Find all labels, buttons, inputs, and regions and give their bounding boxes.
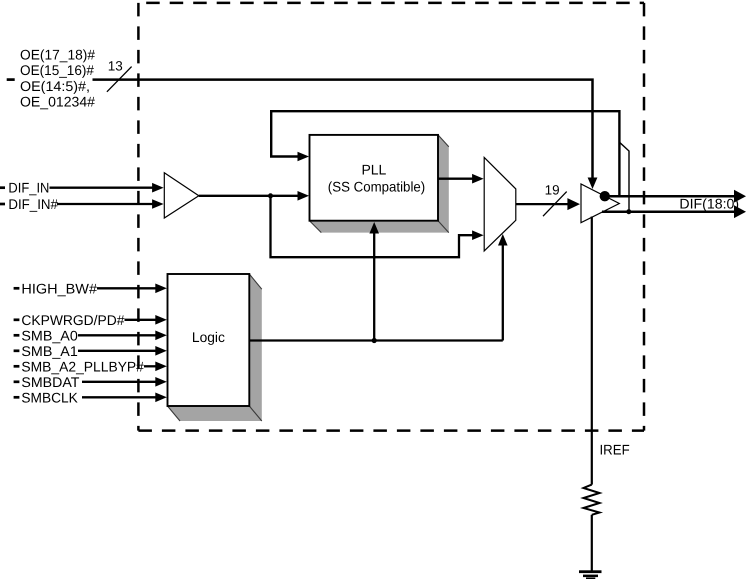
svg-text:SMB_A2_PLLBYP#: SMB_A2_PLLBYP# — [21, 358, 144, 374]
svg-text:DIF_IN#: DIF_IN# — [8, 196, 58, 212]
svg-text:13: 13 — [108, 58, 123, 73]
svg-text:CKPWRGD/PD#: CKPWRGD/PD# — [21, 312, 124, 328]
svg-text:(SS Compatible): (SS Compatible) — [328, 178, 425, 194]
svg-text:OE(14:5)#,: OE(14:5)#, — [20, 78, 90, 94]
svg-text:19: 19 — [545, 183, 560, 198]
svg-text:DIF(18:0): DIF(18:0) — [679, 196, 739, 212]
svg-text:OE_01234#: OE_01234# — [20, 94, 95, 110]
svg-text:SMB_A0: SMB_A0 — [21, 327, 78, 343]
svg-text:DIF_IN: DIF_IN — [8, 180, 49, 196]
svg-text:IREF: IREF — [600, 441, 630, 457]
svg-text:OE(15_16)#: OE(15_16)# — [20, 62, 94, 78]
svg-text:Logic: Logic — [192, 329, 225, 345]
svg-text:PLL: PLL — [361, 161, 386, 177]
svg-text:OE(17_18)#: OE(17_18)# — [20, 47, 95, 63]
svg-text:HIGH_BW#: HIGH_BW# — [21, 280, 97, 296]
svg-text:SMBCLK: SMBCLK — [21, 389, 78, 405]
svg-text:SMBDAT: SMBDAT — [21, 374, 79, 390]
svg-text:SMB_A1: SMB_A1 — [21, 343, 78, 359]
